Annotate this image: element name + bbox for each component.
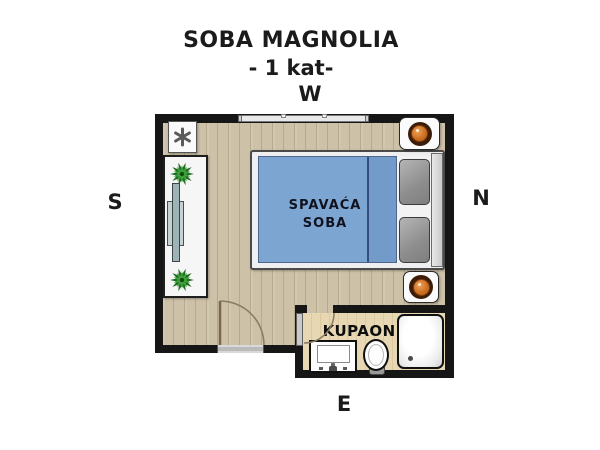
toilet xyxy=(363,339,389,371)
wall-left xyxy=(155,114,163,353)
compass-west-label: W xyxy=(285,82,335,106)
pillow xyxy=(399,217,430,263)
lamp-icon xyxy=(408,122,432,146)
tv-icon xyxy=(172,183,180,262)
window-mullion xyxy=(322,114,327,118)
sink-handle xyxy=(319,367,323,370)
window-end-cap xyxy=(238,115,242,122)
nightstand xyxy=(399,117,440,150)
sink-handle xyxy=(343,367,347,370)
bedroom-label: SPAVAĆA SOBA xyxy=(256,197,394,233)
window-end-cap xyxy=(365,115,369,122)
drain-icon xyxy=(408,356,413,361)
shower xyxy=(397,314,444,369)
pillow xyxy=(399,159,430,205)
headboard xyxy=(431,153,443,267)
compass-north-label: N xyxy=(456,186,506,210)
bathroom-door-leaf xyxy=(296,313,303,346)
dresser xyxy=(163,155,208,298)
floor-plan-page: SOBA MAGNOLIA - 1 kat- W S N E xyxy=(0,0,600,450)
nightstand xyxy=(403,271,439,303)
ac-unit xyxy=(168,121,197,153)
compass-east-label: E xyxy=(319,392,369,416)
sink xyxy=(309,340,357,373)
window xyxy=(240,115,367,122)
compass-south-label: S xyxy=(90,190,140,214)
asterisk-icon xyxy=(169,122,196,152)
page-subtitle: - 1 kat- xyxy=(0,56,582,80)
wall-right xyxy=(445,114,454,378)
page-title: SOBA MAGNOLIA xyxy=(0,28,582,53)
plant-icon xyxy=(169,267,195,293)
door-threshold xyxy=(217,345,264,353)
bathroom-wall-top xyxy=(333,305,445,313)
window-mullion xyxy=(281,114,286,118)
sink-basin xyxy=(317,345,350,363)
lamp-icon xyxy=(409,275,433,299)
